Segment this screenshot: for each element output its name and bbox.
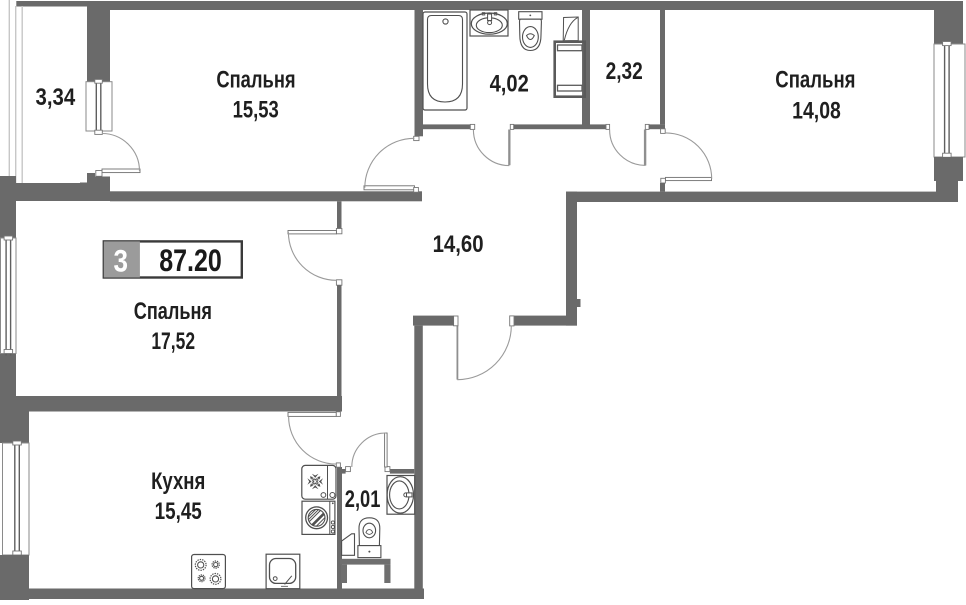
svg-text:Спальня: Спальня (775, 67, 855, 94)
svg-text:2,32: 2,32 (606, 58, 643, 85)
svg-text:Кухня: Кухня (151, 468, 205, 495)
svg-text:14,08: 14,08 (792, 98, 841, 125)
svg-text:15,45: 15,45 (155, 498, 202, 525)
svg-text:2,01: 2,01 (345, 486, 381, 513)
svg-text:4,02: 4,02 (490, 70, 529, 97)
svg-text:3: 3 (113, 242, 128, 278)
svg-text:Спальня: Спальня (134, 298, 212, 325)
svg-text:87.20: 87.20 (159, 242, 222, 278)
svg-text:3,34: 3,34 (36, 84, 76, 111)
svg-text:15,53: 15,53 (233, 97, 279, 124)
svg-text:14,60: 14,60 (433, 231, 484, 258)
svg-text:17,52: 17,52 (151, 328, 195, 355)
svg-text:Спальня: Спальня (216, 67, 295, 94)
